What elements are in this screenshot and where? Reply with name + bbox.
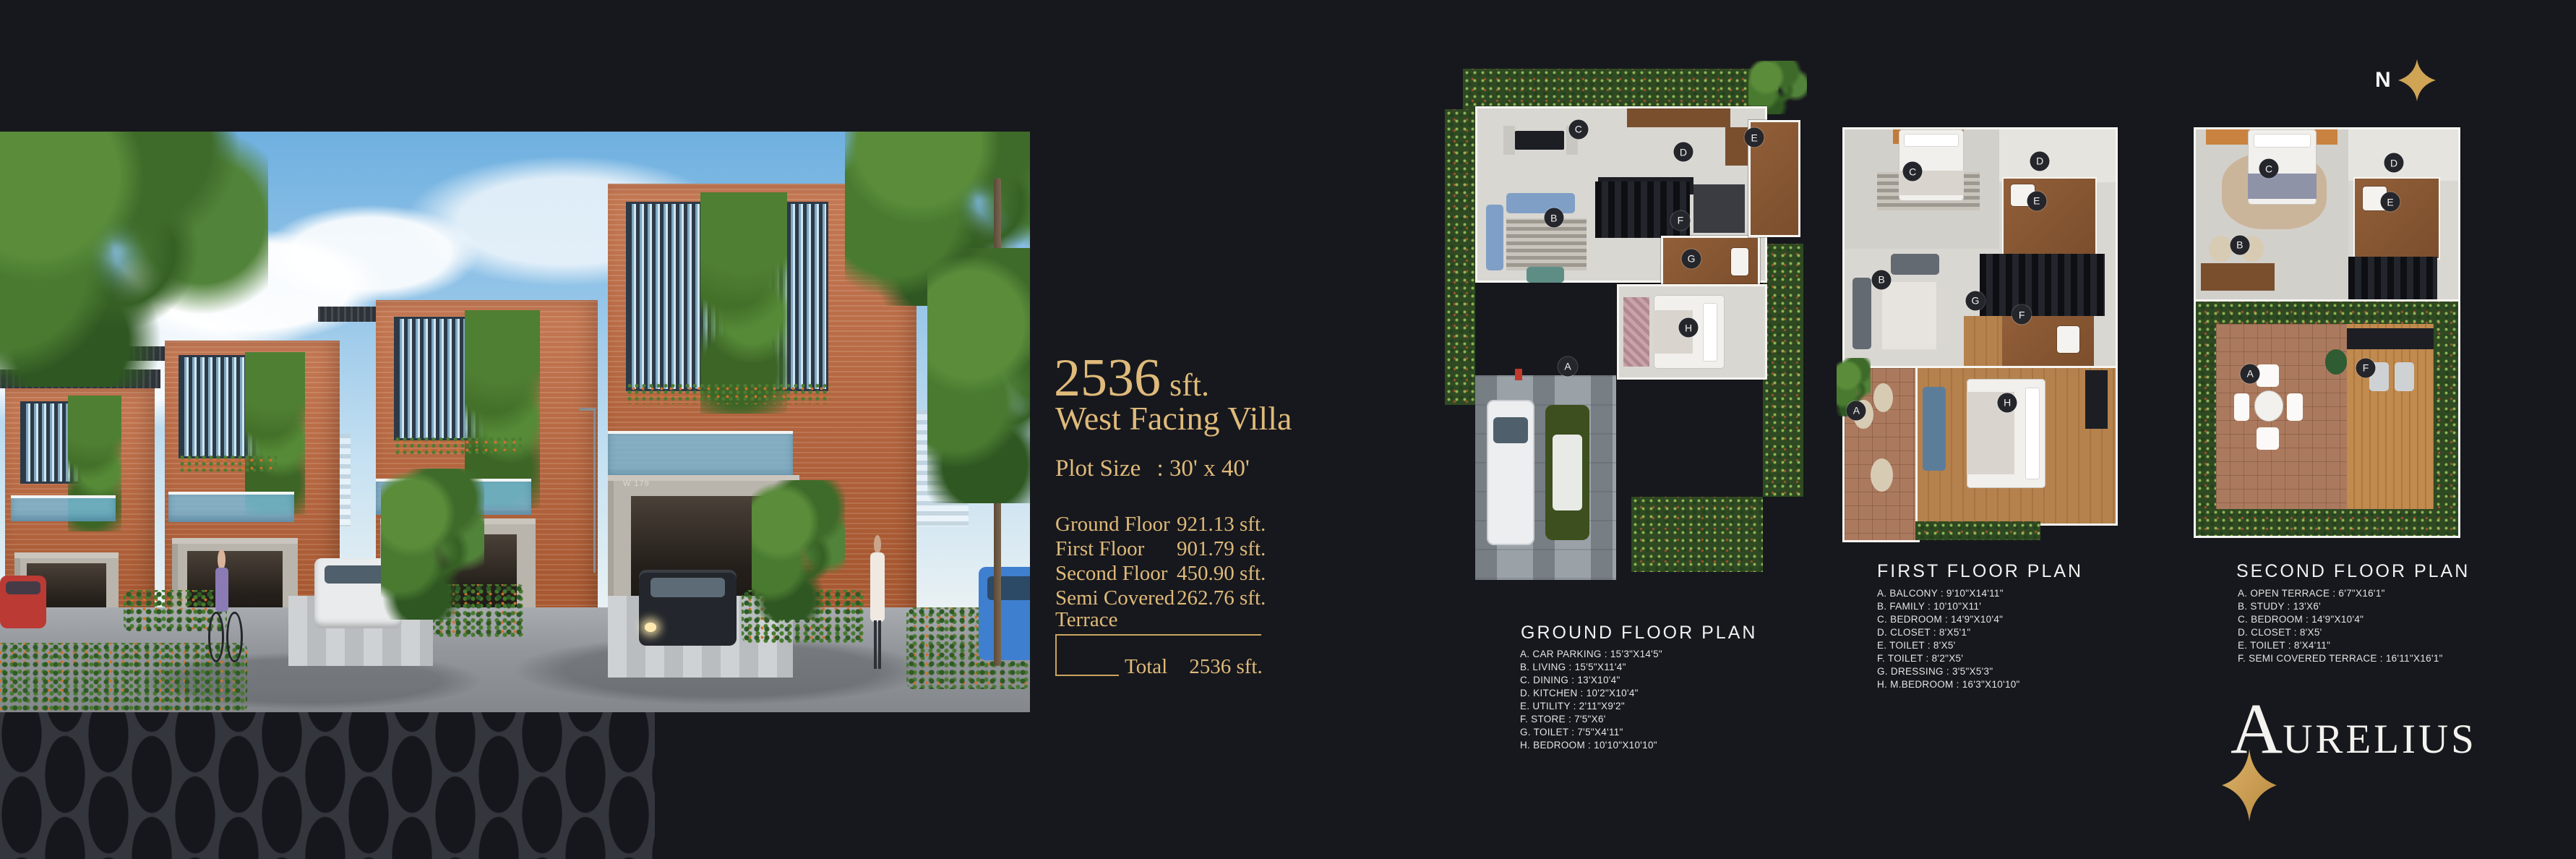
legend-item: G. DRESSING : 3'5"X5'3" [1877,665,2020,678]
pedestrian [868,535,887,669]
street-lamp [593,410,596,573]
floor-label: First Floor [1055,538,1177,560]
legend-item: F. SEMI COVERED TERRACE : 16'11"X16'1" [2238,652,2443,665]
legend-item: E. UTILITY : 2'11"X9'2" [1520,700,1662,713]
first-floor-plan-image: A B C D E F G H [1837,123,2119,542]
room-badge: F [2356,358,2376,377]
room-badge: B [2230,235,2249,255]
hero-photo: W 179 [0,132,1030,712]
total-bracket [1055,634,1119,676]
legend-item: A. BALCONY : 9'10"X14'11" [1877,587,2020,600]
blue-car [979,567,1030,659]
room-badge: G [1682,249,1701,268]
plan-legend-ground: A. CAR PARKING : 15'3"X14'5" B. LIVING :… [1520,648,1662,752]
floor-value: 450.90 sft. [1177,563,1287,584]
floor-area-table: Ground Floor 921.13 sft. First Floor 901… [1055,513,1287,631]
legend-item: A. OPEN TERRACE : 6'7"X16'1" [2238,587,2443,600]
area-unit: sft. [1169,367,1209,403]
shrub [752,480,844,620]
room-badge: F [1670,210,1690,230]
legend-item: H. BEDROOM : 10'10"X10'10" [1520,739,1662,752]
brochure-page: { "page": {"background": "#17181d", "acc… [0,0,2576,859]
legend-item: A. CAR PARKING : 15'3"X14'5" [1520,648,1662,661]
room-badge: B [1872,270,1892,289]
room-badge: A [1847,401,1866,420]
north-indicator: N [2375,59,2436,101]
dark-suv [639,570,737,645]
room-badge: E [2027,191,2046,210]
brand-initial: A [2231,693,2283,765]
floor-value: 901.79 sft. [1177,538,1287,560]
room-badge: H [1679,318,1699,338]
second-floor-plan-image: A B C D E F [2185,123,2465,542]
ground-floor-plan-image: A B C D E F G H [1441,66,1807,604]
plot-size-label: Plot Size [1055,456,1141,482]
brand-name: URELIUS [2283,719,2477,760]
room-badge: D [2030,151,2050,171]
plot-size-value: : 30' x 40' [1157,456,1250,482]
shrub [381,469,484,620]
street-lamp [579,408,596,411]
floor-value: 262.76 sft. [1177,587,1287,631]
room-badge: C [1568,119,1588,139]
tree [0,132,268,387]
plan-title-ground: GROUND FLOOR PLAN [1521,623,1757,644]
plan-title-first: FIRST FLOOR PLAN [1877,561,2083,582]
legend-item: B. LIVING : 15'5"X11'4" [1520,661,1662,674]
floor-label: Second Floor [1055,563,1177,584]
legend-item: B. FAMILY : 10'10"X11' [1877,600,2020,613]
compass-star-icon [2398,59,2436,101]
total-value: 2536 sft. [1189,655,1263,679]
plan-legend-first: A. BALCONY : 9'10"X14'11" B. FAMILY : 10… [1877,587,2020,691]
room-badge: F [2012,305,2032,325]
floor-value: 921.13 sft. [1177,513,1287,535]
area-headline: 2536sft. [1054,351,1209,405]
room-badge: C [2259,159,2279,179]
total-row: Total 2536 sft. [1125,655,1263,679]
legend-item: C. DINING : 13'X10'4" [1520,674,1662,687]
legend-item: D. CLOSET : 8'X5' [2238,626,2443,639]
legend-item: H. M.BEDROOM : 16'3"X10'10" [1877,678,2020,691]
total-label: Total [1125,655,1167,679]
plan-legend-second: A. OPEN TERRACE : 6'7"X16'1" B. STUDY : … [2238,587,2443,665]
red-car [0,576,46,628]
legend-item: C. BEDROOM : 14'9"X10'4" [2238,613,2443,626]
room-badge: C [1903,162,1923,181]
legend-item: E. TOILET : 8'X4'11" [2238,639,2443,652]
dot-pattern [0,712,655,859]
tree [927,248,1031,503]
area-value: 2536 [1054,349,1161,408]
legend-item: E. TOILET : 8'X5' [1877,639,2020,652]
room-badge: A [1558,356,1578,376]
room-badge: E [2381,192,2400,212]
legend-item: D. CLOSET : 8'X5'1" [1877,626,2020,639]
facing-subtitle: West Facing Villa [1055,402,1292,435]
legend-item: G. TOILET : 7'5"X4'11" [1520,726,1662,739]
brand-logo: AURELIUS [2220,693,2470,819]
north-label: N [2375,68,2391,93]
cyclist [206,550,241,660]
room-badge: A [2241,364,2260,383]
plan-car-green [1545,405,1589,539]
legend-item: B. STUDY : 13'X6' [2238,600,2443,613]
room-badge: D [2384,153,2404,173]
plot-size-line: Plot Size : 30' x 40' [1055,456,1250,482]
floor-label: Semi Covered Terrace [1055,587,1177,631]
room-badge: G [1965,291,1985,310]
plan-car-white [1487,400,1534,545]
room-badge: D [1673,142,1693,162]
plan-title-second: SECOND FLOOR PLAN [2236,561,2470,582]
room-badge: H [1998,393,2017,412]
villa-number-label: W 179 [623,479,650,488]
floor-label: Ground Floor [1055,513,1177,535]
room-badge: E [1745,128,1764,148]
legend-item: F. STORE : 7'5"X6' [1520,713,1662,726]
legend-item: F. TOILET : 8'2"X5' [1877,652,2020,665]
legend-item: D. KITCHEN : 10'2"X10'4" [1520,687,1662,700]
room-badge: B [1544,208,1563,228]
legend-item: C. BEDROOM : 14'9"X10'4" [1877,613,2020,626]
